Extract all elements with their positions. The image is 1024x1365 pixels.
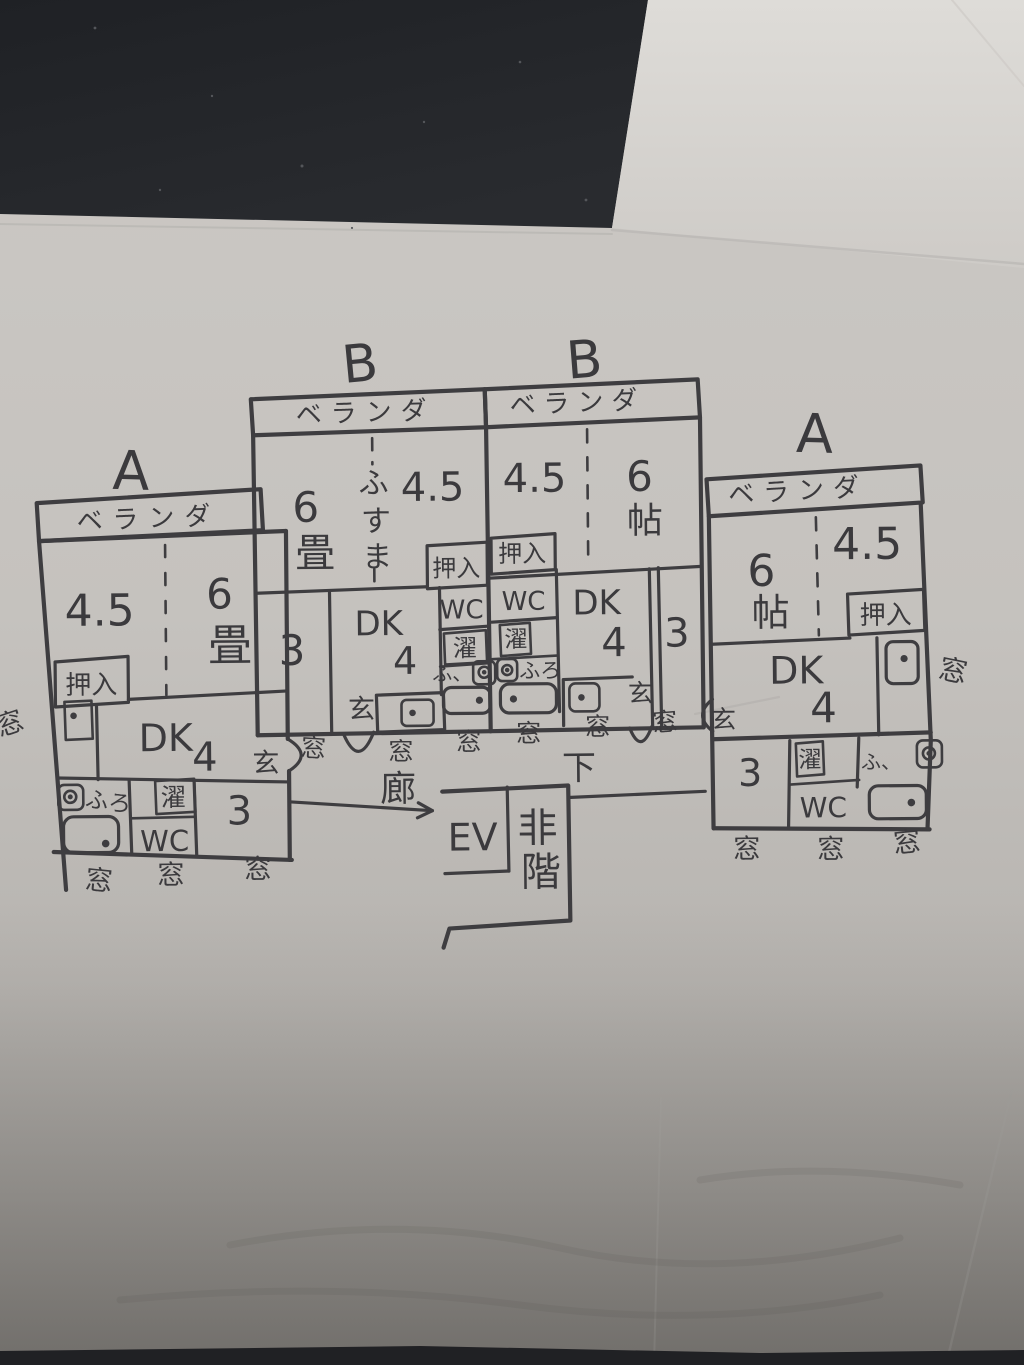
- window-label: 窓: [651, 707, 678, 738]
- wc-label: WC: [502, 587, 546, 617]
- unit-label: A: [795, 402, 834, 466]
- bath-label: ふ、: [861, 750, 901, 774]
- unit-label: B: [339, 333, 380, 396]
- bath-label: ふろ: [519, 659, 561, 683]
- room6-jo: 帖: [627, 501, 663, 542]
- dark-backdrop: [0, 0, 648, 228]
- window-label: 窓: [84, 864, 114, 897]
- window-label: 窓: [300, 733, 327, 763]
- room3-divider: [329, 593, 331, 734]
- dk-label: DK: [138, 716, 194, 760]
- unit-right-wall-lower: [289, 771, 290, 860]
- fusuma-char-2: す: [361, 504, 391, 539]
- laundry-label: 濯: [798, 747, 821, 773]
- oshiire-label: 押入: [498, 540, 546, 568]
- door-cell-divider: [96, 705, 98, 780]
- window-label: 窓: [244, 854, 271, 885]
- laundry-label: 濯: [453, 634, 477, 662]
- veranda-label: ベランダ: [295, 396, 436, 431]
- unit-right-wall-upper: [286, 531, 288, 739]
- room3-label: 3: [278, 626, 305, 675]
- window-label: 窓: [817, 834, 844, 865]
- wc-label: WC: [440, 595, 484, 625]
- ev-divider-vertical: [507, 787, 509, 871]
- wc-label: WC: [140, 824, 189, 858]
- room6-tatami: 畳: [295, 531, 335, 577]
- corridor-label-right: 下: [562, 748, 596, 788]
- entrance-label: 玄: [348, 694, 375, 725]
- room6-number: 6: [206, 569, 233, 618]
- room3-label: 3: [226, 788, 252, 834]
- laundry-label: 濯: [504, 627, 527, 653]
- room45-label: 4.5: [502, 456, 566, 503]
- photo-of-floor-plan-sketch: B ベランダ 6 畳 ふ す ま 4.5 押入 3 DK 4 WC 濯 ふ、 玄…: [0, 0, 1024, 1365]
- stairs-char-1: 非: [517, 806, 557, 852]
- entrance-label: 玄: [628, 679, 653, 708]
- window-label: 窓: [516, 719, 541, 748]
- wc-label: WC: [800, 791, 848, 824]
- bath-label: ふ、: [432, 661, 472, 685]
- dk-size-label: 4: [393, 639, 418, 683]
- entrance-label: 玄: [711, 705, 736, 734]
- veranda-label: ベランダ: [76, 501, 221, 537]
- window-label: 窓: [157, 860, 184, 891]
- room6-jo: 帖: [751, 591, 789, 635]
- corridor-label-left: 廊: [380, 769, 416, 810]
- veranda-label: ベランダ: [509, 385, 646, 421]
- window-label: 窓: [892, 826, 922, 859]
- room3-label: 3: [738, 751, 763, 795]
- stairs-char-2: 階: [521, 850, 561, 896]
- window-label: 窓: [585, 712, 610, 741]
- fusuma-char-1: ふ: [358, 466, 388, 501]
- room3-label: 3: [664, 610, 690, 656]
- room6-number: 6: [626, 452, 653, 501]
- oshiire-label: 押入: [65, 670, 117, 700]
- room6-tatami: 畳: [208, 620, 252, 671]
- unit-label: B: [564, 329, 604, 392]
- floor-plan-canvas: B ベランダ 6 畳 ふ す ま 4.5 押入 3 DK 4 WC 濯 ふ、 玄…: [0, 0, 1024, 1365]
- dk-size-label: 4: [192, 735, 218, 781]
- dk-label: DK: [572, 583, 623, 623]
- oshiire-label: 押入: [860, 601, 912, 631]
- upper-right-paper: [612, 0, 1024, 268]
- door-column-divider: [877, 638, 879, 735]
- laundry-label: 濯: [161, 783, 186, 812]
- room45-label: 4.5: [64, 585, 134, 637]
- room6-number: 6: [292, 483, 319, 532]
- window-label: 窓: [388, 737, 413, 766]
- dk-size-label: 4: [810, 683, 837, 732]
- bottom-shadow: [0, 900, 1024, 1365]
- fusuma-char-3: ま: [362, 540, 392, 575]
- laundry-wc-divider: [131, 817, 194, 819]
- room6-number: 6: [747, 546, 775, 597]
- window-label: 窓: [456, 727, 481, 756]
- oshiire-label: 押入: [432, 554, 480, 582]
- window-label: 窓: [733, 834, 760, 865]
- dk-size-label: 4: [601, 620, 627, 666]
- room45-label: 4.5: [832, 519, 902, 571]
- entrance-label: 玄: [252, 748, 279, 779]
- room45-label: 4.5: [401, 464, 465, 511]
- unit-label: A: [112, 439, 151, 503]
- elevator-label: EV: [447, 815, 497, 859]
